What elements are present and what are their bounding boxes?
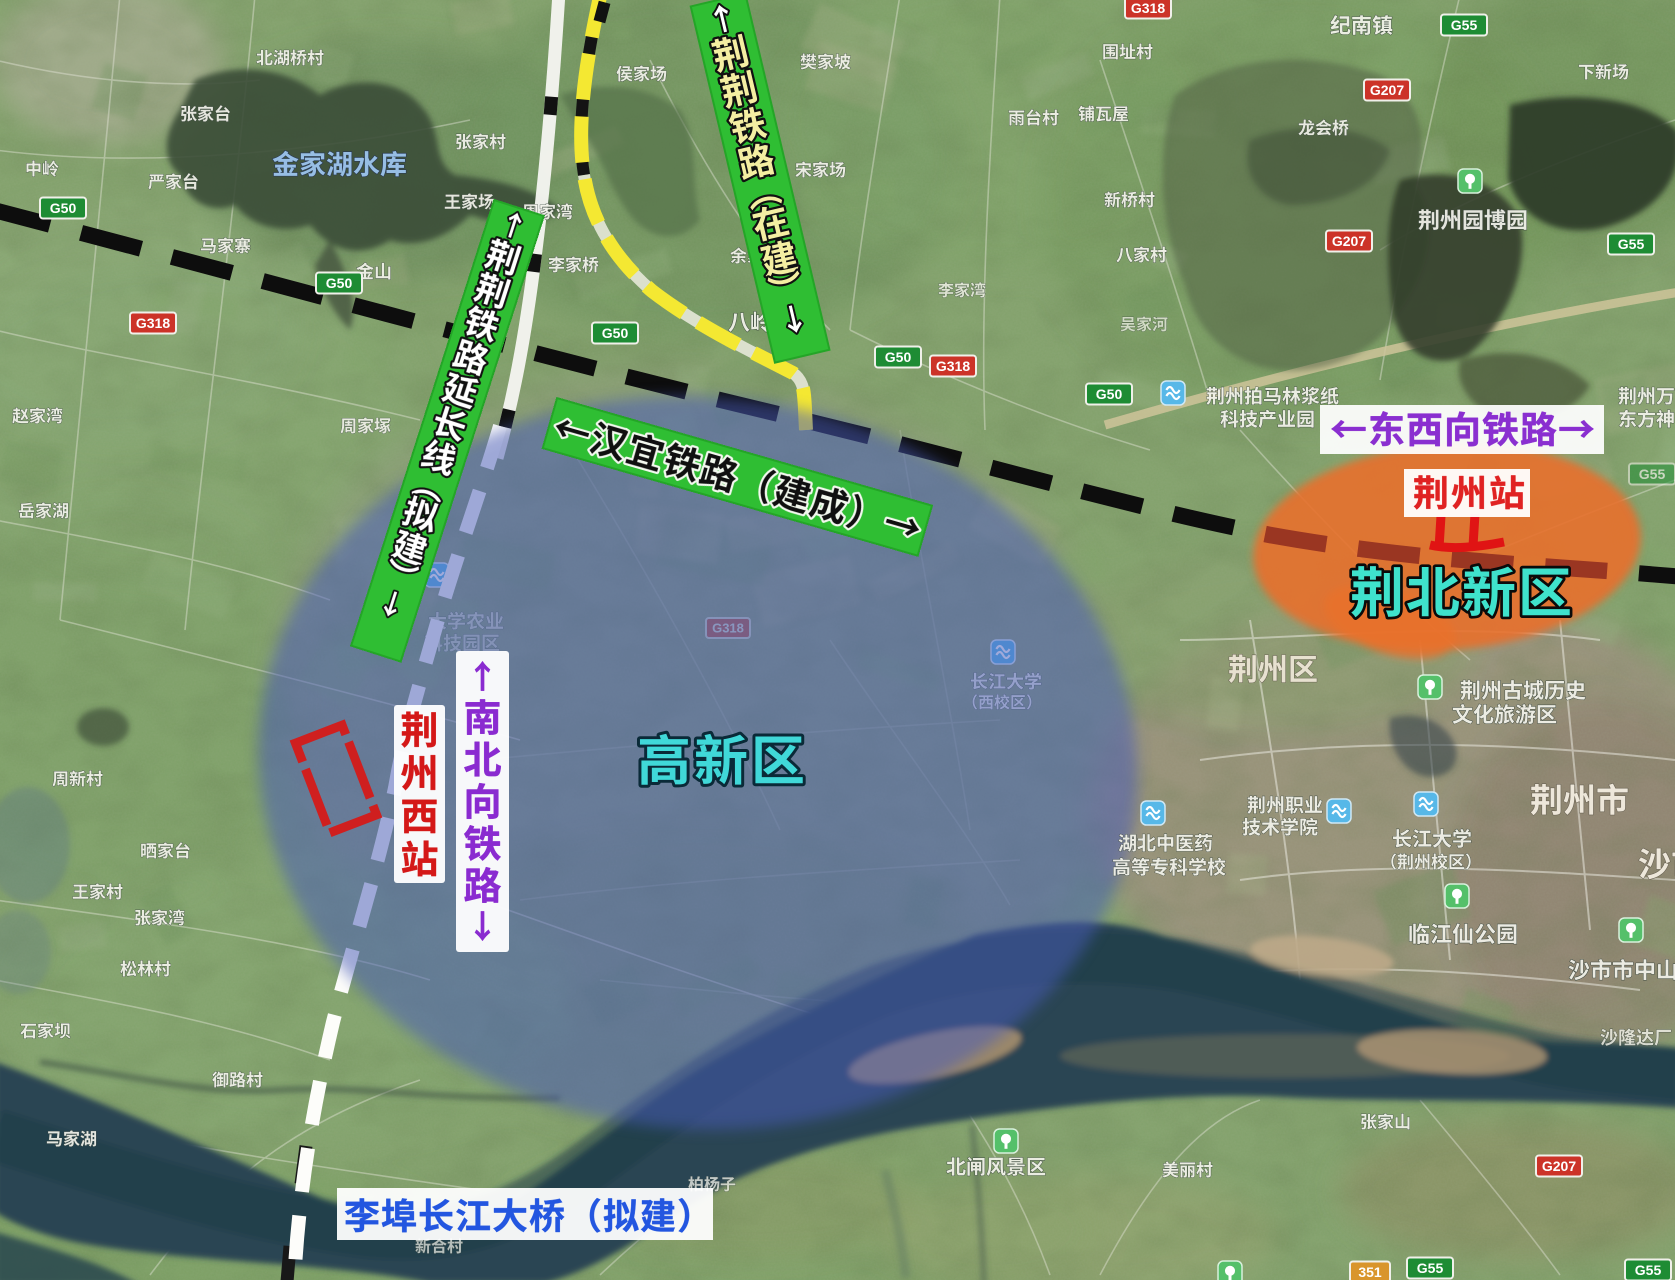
svg-text:G55: G55 xyxy=(1635,1262,1662,1278)
svg-text:G55: G55 xyxy=(1451,17,1478,33)
svg-text:G55: G55 xyxy=(1618,236,1645,252)
svg-text:G50: G50 xyxy=(326,275,353,291)
svg-text:G318: G318 xyxy=(1131,0,1165,16)
svg-text:G207: G207 xyxy=(1542,1158,1576,1174)
svg-text:G50: G50 xyxy=(602,325,629,341)
svg-text:G207: G207 xyxy=(1332,233,1366,249)
svg-text:G50: G50 xyxy=(885,349,912,365)
svg-text:G55: G55 xyxy=(1417,1260,1444,1276)
svg-text:G55: G55 xyxy=(1639,466,1666,482)
svg-text:G50: G50 xyxy=(1096,386,1123,402)
svg-text:G207: G207 xyxy=(1370,82,1404,98)
svg-text:G50: G50 xyxy=(50,200,77,216)
svg-text:G318: G318 xyxy=(936,358,970,374)
svg-text:351: 351 xyxy=(1358,1264,1382,1280)
svg-text:G318: G318 xyxy=(136,315,170,331)
